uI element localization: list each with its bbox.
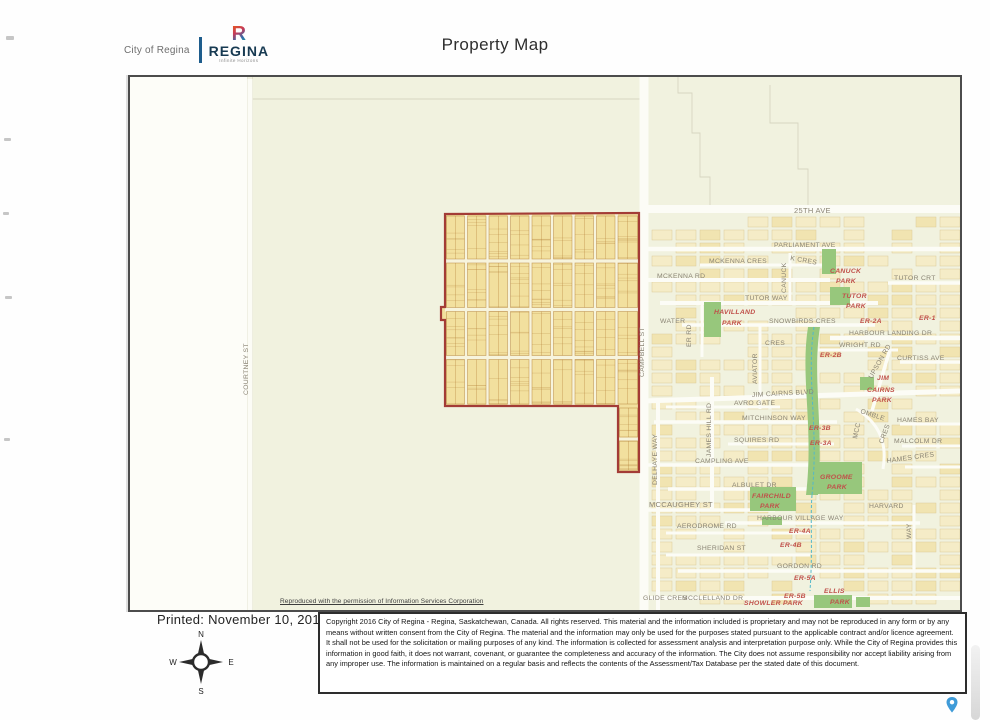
scanned-property-map-page: City of Regina R REGINA Infinite Horizon… bbox=[0, 0, 990, 720]
scrollbar[interactable] bbox=[971, 645, 980, 720]
area-label: ER-5B bbox=[784, 593, 806, 600]
area-label: ER-3A bbox=[810, 440, 832, 447]
street-label: HARVARD bbox=[869, 503, 904, 510]
area-label: SHOWLER PARK bbox=[744, 600, 804, 607]
area-label: ER-2A bbox=[860, 318, 882, 325]
area-label: PARK bbox=[872, 397, 893, 404]
street-label: TUTOR WAY bbox=[745, 295, 788, 302]
printed-date: Printed: November 10, 2019 bbox=[157, 612, 327, 627]
scan-artifact bbox=[4, 138, 11, 141]
street-label: MITCHINSON WAY bbox=[742, 415, 806, 422]
area-label: FAIRCHILD bbox=[752, 493, 791, 500]
scan-artifact bbox=[5, 296, 12, 299]
street-label: HAMES BAY bbox=[897, 417, 939, 424]
area-label: PARK bbox=[830, 599, 851, 606]
area-label: PARK bbox=[836, 278, 857, 285]
street-label: ALBULET DR bbox=[732, 482, 777, 489]
scan-artifact bbox=[4, 438, 10, 441]
scan-artifact bbox=[3, 212, 9, 215]
street-label: WRIGHT RD bbox=[839, 342, 881, 349]
street-label: MCKENNA CRES bbox=[709, 258, 767, 265]
street-label: MCKENNA RD bbox=[657, 273, 705, 280]
street-label: SHERIDAN ST bbox=[697, 545, 746, 552]
street-label: CURTISS AVE bbox=[897, 355, 945, 362]
street-label: HARBOUR LANDING DR bbox=[849, 330, 932, 337]
street-label: CAMPLING AVE bbox=[695, 458, 749, 465]
area-label: PARK bbox=[846, 303, 867, 310]
area-label: JIM bbox=[877, 375, 889, 382]
area-label: ER-4B bbox=[780, 542, 802, 549]
compass-circle bbox=[193, 654, 209, 670]
street-label: WATER bbox=[660, 318, 685, 325]
area-label: ER-3B bbox=[809, 425, 831, 432]
map-frame: 25TH AVEPARLIAMENT AVEMCKENNA CRESK CRES… bbox=[128, 75, 962, 612]
area-label: ER-5A bbox=[794, 575, 816, 582]
area-label: GROOME bbox=[820, 474, 853, 481]
permission-note: Reproduced with the permission of Inform… bbox=[280, 598, 484, 605]
street-label: 25TH AVE bbox=[794, 206, 831, 215]
page-title: Property Map bbox=[0, 35, 990, 55]
area-label: TUTOR bbox=[842, 293, 867, 300]
street-label: TUTOR CRT bbox=[894, 275, 936, 282]
area-label: ELLIS bbox=[824, 588, 845, 595]
street-label: AVRO GATE bbox=[734, 400, 776, 407]
area-label: CANUCK bbox=[830, 268, 862, 275]
street-label: MCCAUGHEY ST bbox=[649, 500, 713, 509]
area-label: CAIRNS bbox=[867, 387, 895, 394]
street-label: GORDON RD bbox=[777, 563, 822, 570]
street-label: MCCLELLAND DR bbox=[682, 595, 743, 602]
street-label: COURTNEY ST bbox=[243, 343, 250, 395]
street-label: AVIATOR bbox=[752, 353, 759, 384]
compass-label-e: E bbox=[228, 658, 233, 667]
rural-white-area bbox=[130, 77, 248, 610]
street-label: JAMES HILL RD bbox=[706, 403, 713, 457]
street-label: PARLIAMENT AVE bbox=[774, 242, 836, 249]
area-label: PARK bbox=[760, 503, 781, 510]
regina-tagline: Infinite Horizons bbox=[219, 59, 258, 64]
compass-label-n: N bbox=[198, 630, 204, 639]
area-label: ER-2B bbox=[820, 352, 842, 359]
compass-label-s: S bbox=[198, 687, 203, 696]
map-pin-icon bbox=[946, 697, 958, 713]
area-label: PARK bbox=[722, 320, 743, 327]
street-label: MALCOLM DR bbox=[894, 438, 942, 445]
copyright-box: Copyright 2016 City of Regina - Regina, … bbox=[318, 612, 967, 694]
street-label: DELHAYE WAY bbox=[652, 434, 659, 485]
street-label: ER RD bbox=[686, 324, 693, 347]
compass-rose-icon: N E S W bbox=[168, 628, 238, 696]
area-label: HAVILLAND bbox=[714, 309, 755, 316]
area-label: PARK bbox=[827, 484, 848, 491]
street-label: CAMPBELL ST bbox=[639, 327, 646, 377]
compass-label-w: W bbox=[169, 658, 177, 667]
scan-artifact bbox=[6, 36, 14, 40]
street-label: SQUIRES RD bbox=[734, 437, 779, 444]
street-label: SNOWBIRDS CRES bbox=[769, 318, 836, 325]
street-label: WAY bbox=[906, 523, 913, 539]
street-label: GLIDE CRES bbox=[643, 595, 687, 602]
street-label: CRES bbox=[765, 340, 785, 347]
street-label: CANUCK bbox=[781, 262, 788, 293]
map-svg: 25TH AVEPARLIAMENT AVEMCKENNA CRESK CRES… bbox=[130, 77, 960, 610]
area-label: ER-4A bbox=[789, 528, 811, 535]
street-label: HARBOUR VILLAGE WAY bbox=[757, 515, 844, 522]
area-label: ER-1 bbox=[919, 315, 936, 322]
street-label: AERODROME RD bbox=[677, 523, 737, 530]
